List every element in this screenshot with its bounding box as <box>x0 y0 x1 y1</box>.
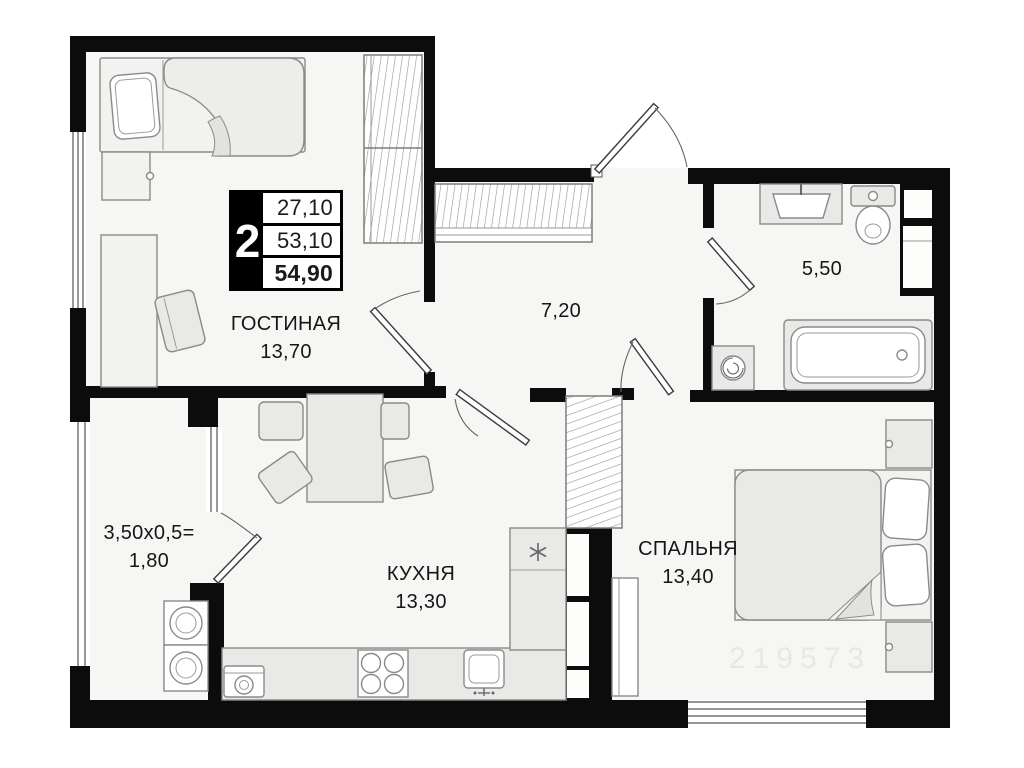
apartment-area-value: 53,10 <box>263 226 340 256</box>
hall-label: 7,20 <box>541 297 581 325</box>
bedroom-name: СПАЛЬНЯ <box>638 535 738 563</box>
bedroom-label: СПАЛЬНЯ 13,40 <box>638 535 738 591</box>
bathroom-label: 5,50 <box>802 255 842 283</box>
wardrobe <box>364 55 422 243</box>
desk <box>101 235 157 387</box>
rooms-count: 2 <box>232 193 263 288</box>
vanity-sink <box>760 183 842 224</box>
stove <box>358 650 408 697</box>
floor-plan: 219573 2 27,10 53,10 54,90 ГОСТИНАЯ 13,7… <box>0 0 1024 768</box>
floor-plan-drawing: 219573 <box>0 0 1024 768</box>
dresser <box>612 578 638 696</box>
balcony-kitchen-window <box>206 427 222 512</box>
dining-chair <box>259 402 303 440</box>
balcony-glazing <box>74 422 90 666</box>
living-area-value: 27,10 <box>263 193 340 223</box>
nightstand <box>102 152 150 200</box>
dryer-icon <box>164 645 208 691</box>
bathroom-area: 5,50 <box>802 255 842 283</box>
washer-icon <box>164 601 208 645</box>
kitchen-area: 13,30 <box>387 588 455 616</box>
dining-chair <box>384 455 434 499</box>
watermark: 219573 <box>729 642 871 675</box>
dining-table <box>307 394 383 502</box>
bedroom-area: 13,40 <box>638 563 738 591</box>
hall-area: 7,20 <box>541 297 581 325</box>
bedroom-window <box>688 700 866 728</box>
kitchen-label: КУХНЯ 13,30 <box>387 560 455 616</box>
bedroom-closet <box>566 396 622 528</box>
balcony-area: 1,80 <box>103 547 194 575</box>
living-room-name: ГОСТИНАЯ <box>231 310 341 338</box>
nightstand <box>886 622 933 672</box>
balcony-formula: 3,50x0,5= <box>103 519 194 547</box>
living-room-label: ГОСТИНАЯ 13,70 <box>231 310 341 366</box>
balcony-appliances <box>164 601 208 691</box>
counter-washer-icon <box>224 666 264 697</box>
dining-chair <box>381 403 409 439</box>
living-room-area: 13,70 <box>231 338 341 366</box>
bathtub <box>784 320 932 390</box>
bed-pillow <box>882 544 930 607</box>
washing-machine-icon <box>712 346 754 390</box>
kitchen-name: КУХНЯ <box>387 560 455 588</box>
living-room-window <box>70 132 86 308</box>
nightstand <box>886 420 933 468</box>
bed-pillow <box>109 72 160 140</box>
bed-pillow <box>882 478 930 541</box>
hall-closet <box>435 184 592 242</box>
balcony-label: 3,50x0,5= 1,80 <box>103 519 194 575</box>
apartment-info-box: 2 27,10 53,10 54,90 <box>229 190 343 291</box>
entrance-door <box>591 104 687 177</box>
total-area-value: 54,90 <box>263 258 340 288</box>
